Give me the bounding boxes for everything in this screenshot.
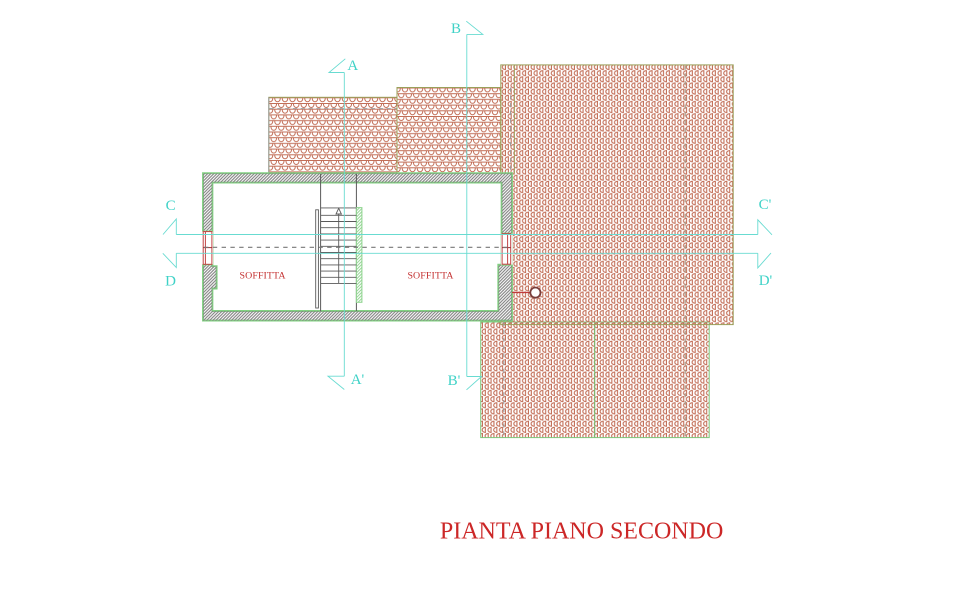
svg-text:SOFFITTA: SOFFITTA [407, 270, 454, 281]
svg-text:B: B [451, 21, 461, 37]
svg-text:D: D [165, 274, 176, 290]
svg-text:PIANTA PIANO SECONDO: PIANTA PIANO SECONDO [440, 519, 723, 545]
svg-text:C': C' [759, 197, 772, 213]
svg-text:C: C [166, 198, 176, 214]
svg-text:D': D' [759, 273, 773, 289]
svg-text:SOFFITTA: SOFFITTA [240, 270, 287, 281]
svg-text:A: A [347, 58, 358, 74]
svg-text:B': B' [448, 373, 461, 389]
svg-text:A': A' [351, 372, 365, 388]
